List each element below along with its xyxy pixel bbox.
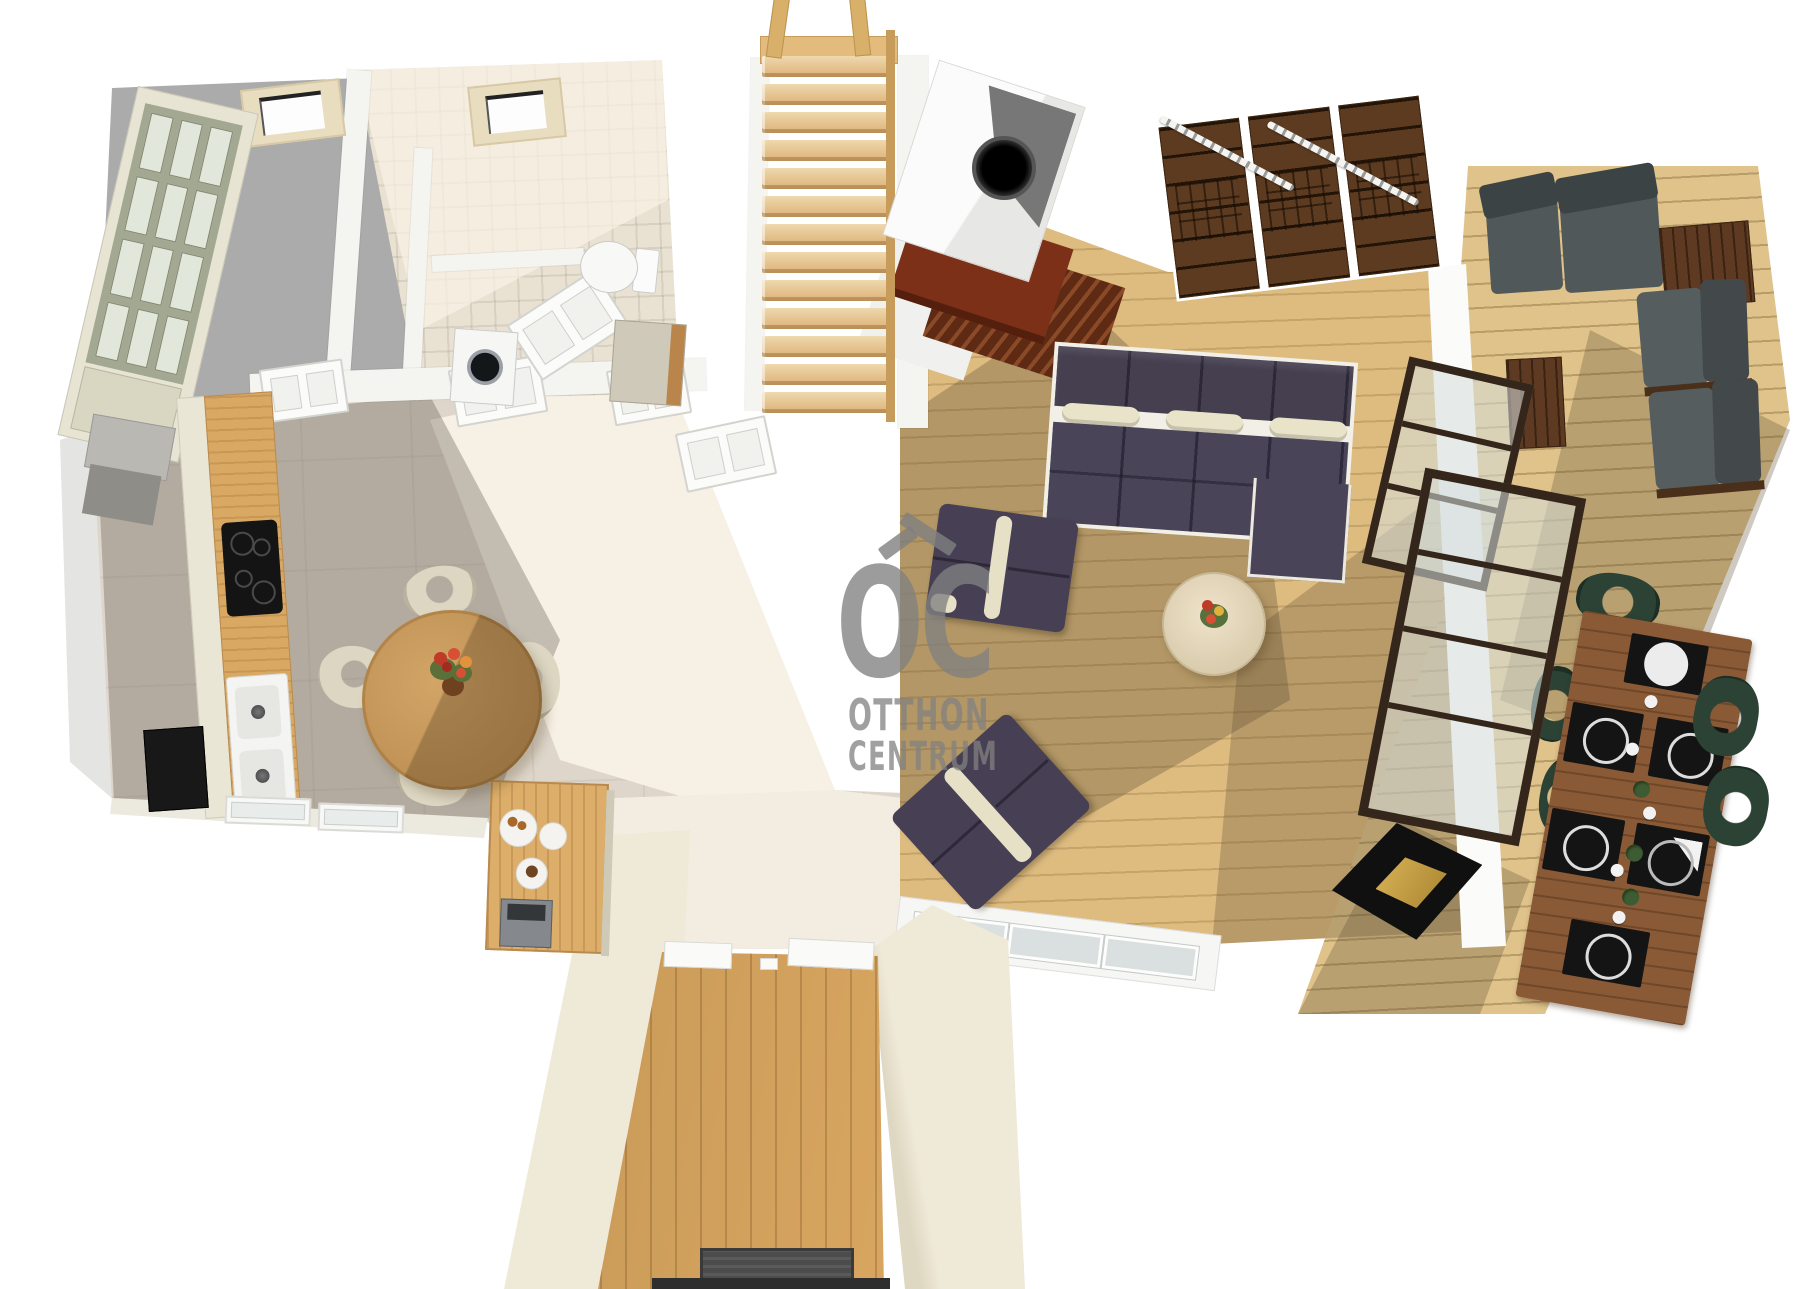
coffee-machine — [499, 898, 553, 948]
outdoor-lounge-chair — [1636, 283, 1752, 388]
tread — [762, 280, 894, 301]
sofa-chaise — [1247, 478, 1352, 584]
dining-table-round — [362, 610, 542, 790]
washer-door-icon — [466, 348, 504, 386]
tread — [762, 196, 894, 217]
washing-machine — [449, 328, 518, 406]
door-understairs — [675, 415, 777, 493]
hall-door-bracket — [760, 958, 778, 970]
tread — [762, 364, 894, 385]
flower-centerpiece — [424, 648, 482, 700]
kitchen-island — [485, 780, 609, 954]
coffee-table-round — [1162, 572, 1266, 676]
cooktop-icon — [221, 519, 283, 617]
oven-front — [143, 726, 209, 812]
extractor-hood — [76, 414, 174, 527]
window-kitchen-2 — [318, 803, 405, 834]
tread — [762, 224, 894, 245]
tread — [762, 308, 894, 329]
stair-treads — [762, 56, 894, 422]
tread — [762, 168, 894, 189]
stovepipe-icon — [972, 136, 1036, 200]
tread — [762, 56, 894, 77]
floorplan-3d-render: OC OTTHON CENTRUM — [0, 0, 1820, 1289]
outdoor-lounge-chair — [1648, 383, 1764, 490]
tread — [762, 84, 894, 105]
shelf-module — [1248, 107, 1350, 288]
hall-door-lintel — [787, 938, 874, 970]
tread — [762, 392, 894, 413]
toilet — [577, 238, 660, 298]
outdoor-lounge-seat — [1558, 183, 1663, 294]
tread — [762, 252, 894, 273]
cup — [539, 822, 568, 851]
skylight-window — [467, 77, 567, 146]
hall-door-lintel — [664, 941, 733, 969]
entry-threshold — [652, 1278, 890, 1289]
tread — [762, 112, 894, 133]
outdoor-lounge-seat — [1485, 190, 1564, 295]
tread — [762, 336, 894, 357]
window-kitchen-1 — [225, 796, 312, 827]
sectional-sofa — [1046, 346, 1354, 544]
tread — [762, 140, 894, 161]
armchair — [925, 503, 1079, 633]
staircase — [762, 56, 894, 422]
bathroom-vanity — [609, 320, 687, 407]
